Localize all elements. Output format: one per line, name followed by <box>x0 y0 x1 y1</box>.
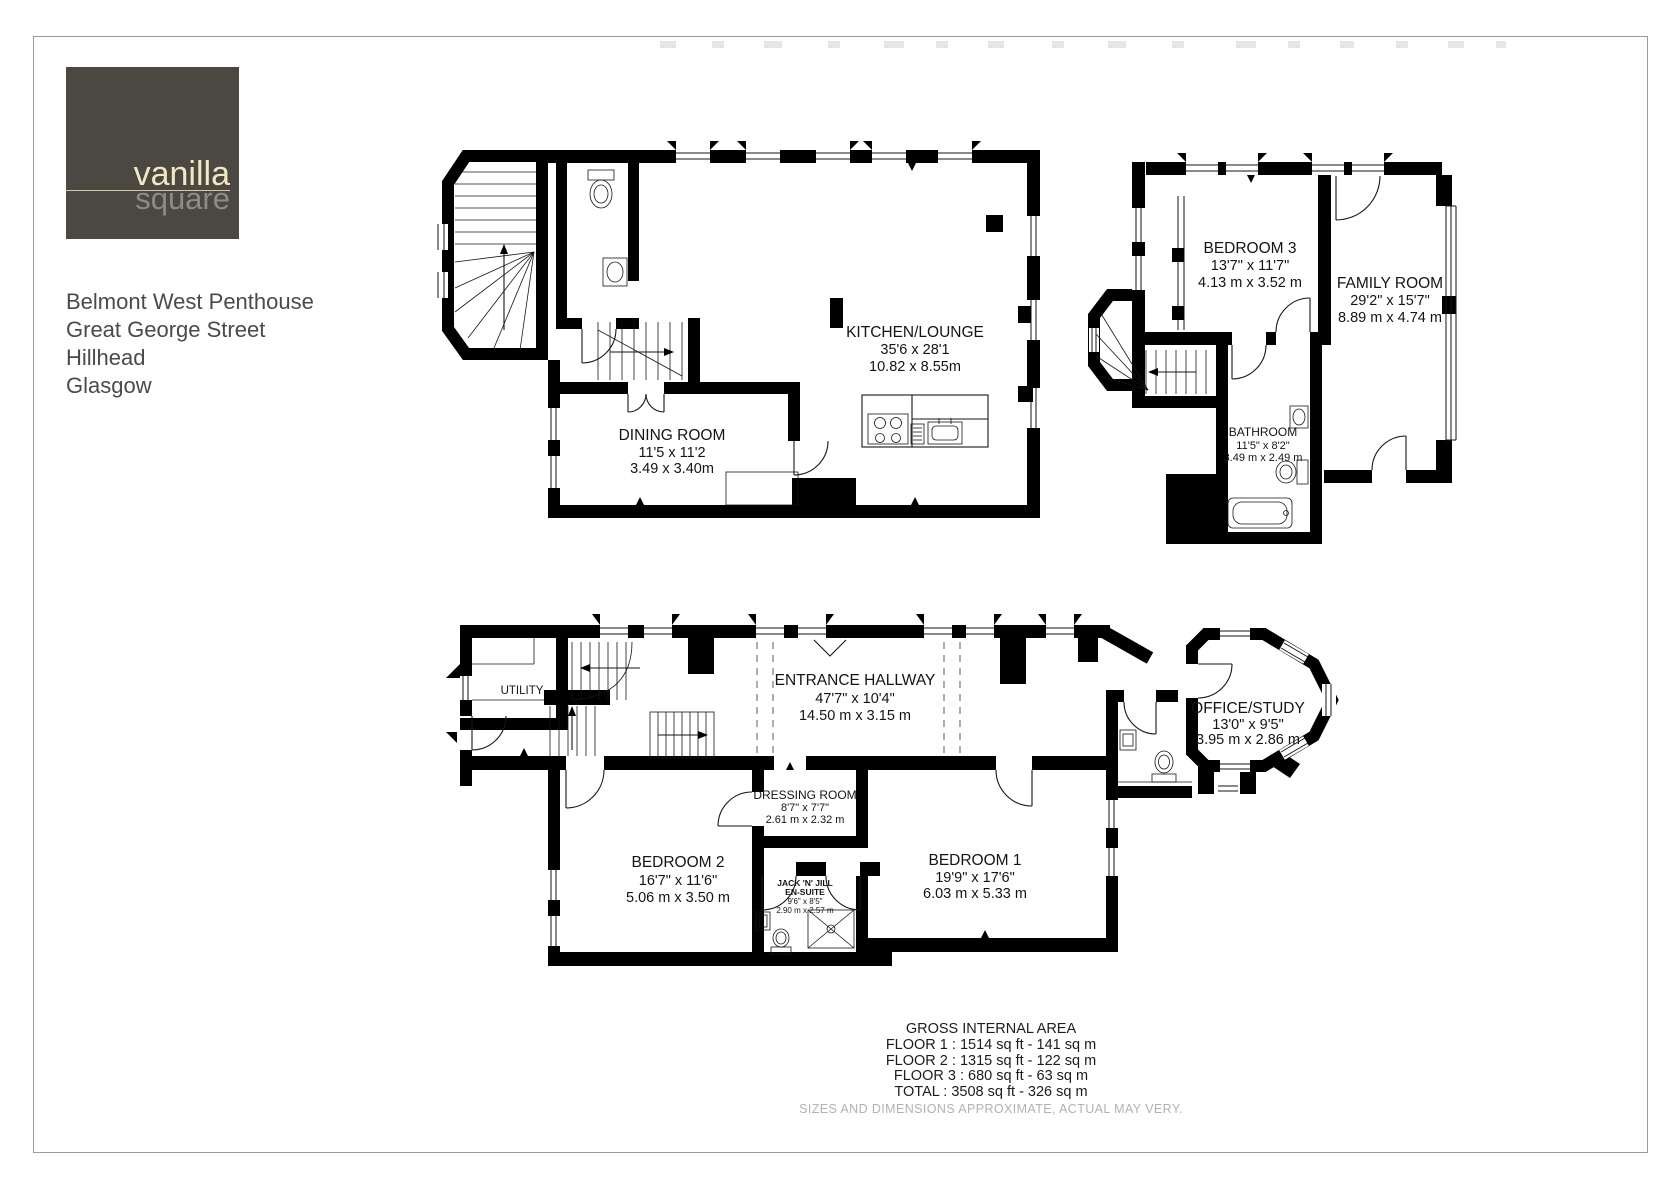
bedroom2-door-arc <box>566 770 604 808</box>
room-size-metric: 3.95 m x 2.86 m <box>1196 732 1300 748</box>
walls <box>1089 153 1456 544</box>
room-name: ENTRANCE HALLWAY <box>775 672 936 689</box>
family-room-label: FAMILY ROOM 29'2" x 15'7" 8.89 m x 4.74 … <box>1337 275 1443 326</box>
stair-bay <box>1094 295 1132 385</box>
shower-icon <box>808 910 854 948</box>
pillar <box>986 215 1003 232</box>
family-room-door-arc <box>1336 176 1380 220</box>
room-name-2: EN-SUITE <box>785 887 825 897</box>
utility-label: UTILITY <box>501 685 544 697</box>
office-wc-door-arc <box>1124 702 1156 734</box>
room-size-metric: 2.61 m x 2.32 m <box>766 814 845 826</box>
floor-3-plan: BEDROOM 3 13'7" x 11'7" 4.13 m x 3.52 m … <box>1089 153 1456 544</box>
summary-title: GROSS INTERNAL AREA <box>641 1022 1341 1038</box>
wc-toilet-icon <box>588 170 614 208</box>
family-room-bottom-door-arc <box>1372 436 1406 470</box>
summary-floor3: FLOOR 3 : 680 sq ft - 63 sq m <box>641 1069 1341 1085</box>
dressing-to-bedroom2-door-arc <box>718 792 752 826</box>
bedroom3-glazed-partition <box>1172 196 1184 330</box>
floorplan-drawing: KITCHEN/LOUNGE 35'6 x 28'1 10.82 x 8.55m… <box>0 0 1680 1188</box>
room-size-imperial: 16'7" x 11'6" <box>639 873 717 889</box>
double-door-arcs <box>628 394 664 412</box>
bedroom1-door-arc <box>996 770 1032 806</box>
room-size-metric: 6.03 m x 5.33 m <box>923 886 1027 902</box>
floor-1-plan: UTILITY ENTRANCE HALLWAY 47'7" x 10'4" 1… <box>446 614 1336 966</box>
gross-internal-area-summary: GROSS INTERNAL AREA FLOOR 1 : 1514 sq ft… <box>641 1022 1341 1118</box>
room-size-imperial: 8'7" x 7'7" <box>781 802 829 814</box>
summary-floor2: FLOOR 2 : 1315 sq ft - 122 sq m <box>641 1054 1341 1070</box>
room-name: DINING ROOM <box>619 427 726 444</box>
island-sink-icon <box>928 418 962 444</box>
summary-total: TOTAL : 3508 sq ft - 326 sq m <box>641 1085 1341 1101</box>
wc-door-arc <box>582 329 616 363</box>
room-size-imperial: 29'2" x 15'7" <box>1350 293 1430 309</box>
top-artifact-marks <box>660 41 1506 48</box>
wc-sink-icon <box>603 258 627 286</box>
bedroom2-label: BEDROOM 2 16'7" x 11'6" 5.06 m x 3.50 m <box>626 854 730 906</box>
kitchen-island <box>862 395 988 447</box>
bedroom1-label: BEDROOM 1 19'9" x 17'6" 6.03 m x 5.33 m <box>923 852 1027 902</box>
pier <box>688 638 714 674</box>
room-size-imperial: 13'0" x 9'5" <box>1212 717 1283 733</box>
pier <box>1000 638 1026 684</box>
room-size-imperial: 9'6" x 8'5" <box>788 897 823 906</box>
summary-floor1: FLOOR 1 : 1514 sq ft - 141 sq m <box>641 1038 1341 1054</box>
room-size-imperial: 11'5" x 8'2" <box>1236 440 1289 452</box>
dining-room-label: DINING ROOM 11'5 x 11'2 3.49 x 3.40m <box>619 427 726 477</box>
room-size-metric: 3.49 m x 2.49 m <box>1224 452 1303 464</box>
floorplan-page: { "page": { "logo": { "word1": "vanilla"… <box>0 0 1680 1188</box>
ensuite-toilet-icon <box>771 929 791 954</box>
bathroom-label: BATHROOM 11'5" x 8'2" 3.49 m x 2.49 m <box>1224 425 1303 464</box>
room-size-imperial: 13'7" x 11'7" <box>1211 258 1289 274</box>
floor-2-plan: KITCHEN/LOUNGE 35'6 x 28'1 10.82 x 8.55m… <box>436 141 1043 518</box>
room-name: BATHROOM <box>1229 425 1297 439</box>
pier <box>1078 638 1098 662</box>
room-size-imperial: 47'7" x 10'4" <box>815 691 895 707</box>
bath-icon <box>1228 498 1292 528</box>
room-name: BEDROOM 1 <box>928 852 1021 869</box>
bedroom3-label: BEDROOM 3 13'7" x 11'7" 4.13 m x 3.52 m <box>1198 240 1302 291</box>
room-size-metric: 3.49 x 3.40m <box>630 461 714 477</box>
entrance-hallway-label: ENTRANCE HALLWAY 47'7" x 10'4" 14.50 m x… <box>775 672 936 724</box>
room-name: BEDROOM 3 <box>1203 240 1296 257</box>
dressing-room-label: DRESSING ROOM 8'7" x 7'7" 2.61 m x 2.32 … <box>753 788 856 826</box>
room-size-metric: 4.13 m x 3.52 m <box>1198 275 1302 291</box>
room-size-metric: 10.82 x 8.55m <box>869 359 961 375</box>
office-wc-sink-icon <box>1120 730 1136 750</box>
hallway-staircase <box>650 712 714 758</box>
hearth-outline <box>726 472 798 505</box>
walls <box>446 614 1300 966</box>
room-size-metric: 2.90 m x 2.57 m <box>776 906 834 915</box>
room-size-imperial: 11'5 x 11'2 <box>638 445 705 461</box>
secondary-staircase <box>598 322 682 380</box>
dishwasher-icon <box>911 424 924 444</box>
bay-notch <box>814 640 846 656</box>
room-size-metric: 14.50 m x 3.15 m <box>799 708 911 724</box>
chimney-breast <box>792 478 856 518</box>
room-size-metric: 8.89 m x 4.74 m <box>1338 310 1442 326</box>
room-name: OFFICE/STUDY <box>1191 700 1305 717</box>
summary-disclaimer: SIZES AND DIMENSIONS APPROXIMATE, ACTUAL… <box>641 1102 1341 1118</box>
room-size-metric: 5.06 m x 3.50 m <box>626 890 730 906</box>
room-size-imperial: 35'6 x 28'1 <box>880 342 949 358</box>
dining-door-arc <box>794 441 828 475</box>
bedroom3-door-arc <box>1276 298 1310 332</box>
room-name: DRESSING ROOM <box>753 788 856 802</box>
kitchen-lounge-label: KITCHEN/LOUNGE 35'6 x 28'1 10.82 x 8.55m <box>846 324 984 375</box>
room-name: FAMILY ROOM <box>1337 275 1443 292</box>
hob-icon <box>868 414 908 444</box>
room-name: BEDROOM 2 <box>631 854 724 871</box>
bathroom-door-arc <box>1232 345 1266 379</box>
room-name: KITCHEN/LOUNGE <box>846 324 984 341</box>
pillar <box>1018 306 1031 323</box>
office-wc-toilet-icon <box>1118 751 1192 782</box>
pillar <box>1018 386 1033 402</box>
jack-n-jill-label: JACK 'N' JILL EN-SUITE 9'6" x 8'5" 2.90 … <box>776 878 834 915</box>
room-size-imperial: 19'9" x 17'6" <box>935 870 1015 886</box>
pillar <box>830 298 843 328</box>
